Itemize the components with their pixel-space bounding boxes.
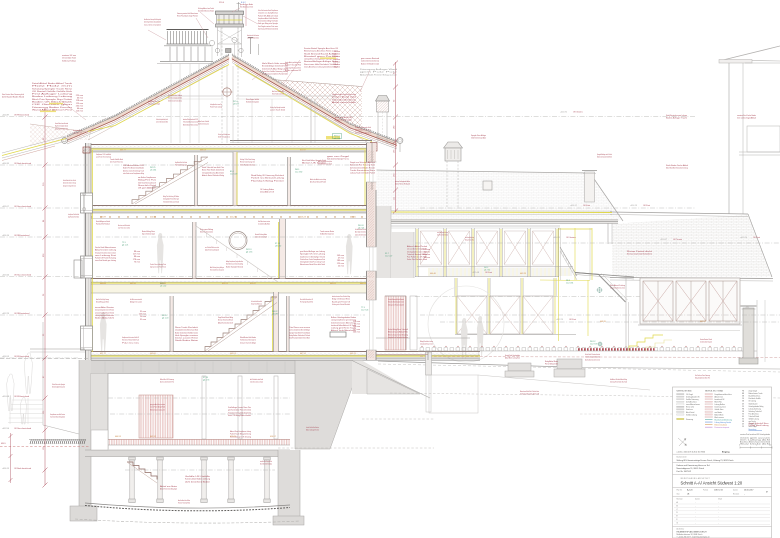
svg-text:gem aussen Bestand: gem aussen Bestand (361, 57, 380, 60)
svg-text:OK First: OK First (753, 236, 760, 239)
svg-text:409.53: 409.53 (230, 353, 236, 355)
svg-text:UK innen Boden Parkett: UK innen Boden Parkett (62, 57, 76, 60)
svg-text:Spengler Sturz Auflager: Spengler Sturz Auflager (471, 134, 486, 137)
svg-text:Beton mm Konstruktion: Beton mm Konstruktion (200, 231, 214, 234)
svg-text:Umbau und Umnutzung Haus zur S: Umbau und Umnutzung Haus zur Sul (677, 464, 711, 467)
svg-text:Biberschwanz Detail Schalung: Biberschwanz Detail Schalung (388, 333, 409, 336)
svg-text:403.61: 403.61 (330, 283, 336, 285)
svg-text:Decke gem Traufe siehe Auflage: Decke gem Traufe siehe Auflager (240, 341, 256, 344)
svg-text:VS: VS (742, 413, 744, 415)
svg-text:Belag neu Holz Anschluss Speng: Belag neu Holz Anschluss Spengler (142, 233, 155, 236)
svg-text:Boden OK Boden Detail: Boden OK Boden Detail (361, 62, 379, 65)
svg-text:First Auflager Lattung: First Auflager Lattung (32, 93, 74, 96)
svg-text:+410.58: +410.58 (2, 396, 9, 398)
svg-text:aussen Schalung Spengler Stati: aussen Schalung Spengler Statik Lattung (437, 231, 448, 234)
svg-text:UK: UK (742, 416, 744, 418)
svg-text:SB: SB (742, 396, 744, 398)
svg-text:404.40: 404.40 (430, 273, 436, 275)
svg-text:OK RB bestehend: OK RB bestehend (14, 234, 29, 237)
svg-text:Flachdach Bauteil Unterlagsbod: Flachdach Bauteil Unterlagsboden (335, 119, 352, 122)
svg-text:Holz Abbruch Flachdach Abbruch: Holz Abbruch Flachdach Abbruch Belag (610, 378, 627, 381)
svg-text:Dämmung Unterlagsboden innen m: Dämmung Unterlagsboden innen mm Flachdac… (95, 309, 114, 312)
svg-text:Ablauf Konstruktion dicht: Ablauf Konstruktion dicht (218, 321, 233, 324)
svg-text:414.97: 414.97 (270, 436, 276, 438)
svg-text:Biberschwanz Flachdach Ziegel: Biberschwanz Flachdach Ziegel Holz Baute… (218, 319, 233, 322)
svg-text:ersetzen Beton Auflager Leibun: ersetzen Beton Auflager Leibung (465, 236, 474, 239)
svg-text:113 mm: 113 mm (76, 111, 83, 113)
svg-text:Boden Dämmung Parkett Blech: Boden Dämmung Parkett Blech (597, 156, 612, 159)
svg-text:Schalung siehe Trittschall Fla: Schalung siehe Trittschall Flachdach (332, 303, 350, 306)
svg-text:OK Gesims: OK Gesims (573, 112, 583, 114)
svg-text:Bestand Statik Traufe Dämmung: Bestand Statik Traufe Dämmung ersetzen (198, 123, 209, 126)
svg-text:Boden mm Holz Schalung Statik: Boden mm Holz Schalung Statik (350, 164, 376, 167)
svg-text:Rinne Dampfbremse Leibung Deck: Rinne Dampfbremse Leibung Decke (210, 269, 224, 272)
svg-text:Beton Gefälle Gefälle Statik A: Beton Gefälle Gefälle Statik Auflager (260, 463, 272, 466)
svg-text:Spengler mm Ziegel UK innen: Spengler mm Ziegel UK innen (63, 184, 76, 187)
svg-text:Sturz Fenster Sturz Dämmung di: Sturz Fenster Sturz Dämmung dicht (2, 93, 24, 96)
svg-text:Putz Rinne mm aussen: Putz Rinne mm aussen (289, 326, 311, 329)
svg-text:First Auflager Fenster Rinne P: First Auflager Fenster Rinne Putz (228, 406, 251, 409)
svg-text:Sturz OK Belag Biberschwanz: Sturz OK Belag Biberschwanz (228, 414, 251, 417)
svg-text:Stiftung WG Gemeinnützige Frau: Stiftung WG Gemeinnützige Frauen Zürich,… (677, 459, 734, 462)
svg-text:413.23: 413.23 (300, 217, 306, 219)
svg-text:FB: FB (742, 411, 744, 413)
svg-text:Parkett Bestand Detail Bauteil: Parkett Bestand Detail Bauteil (388, 298, 404, 301)
svg-text:Wand Belag OK Dämmung Flachdac: Wand Belag OK Dämmung Flachdach (251, 175, 285, 177)
svg-text:+414.17: +414.17 (570, 205, 577, 207)
svg-text:OK First: OK First (643, 204, 650, 207)
svg-text:490.5: 490.5 (1, 443, 6, 445)
svg-text:520.4: 520.4 (219, 2, 225, 4)
svg-text:413.83: 413.83 (160, 283, 166, 285)
svg-text:ersetzen Bestand UK Balken Fla: ersetzen Bestand UK Balken Flachdach (247, 37, 259, 40)
svg-text:Gefälle Dämmung: Gefälle Dämmung (686, 399, 699, 401)
svg-text:103 mm: 103 mm (353, 331, 361, 333)
svg-text:Schalung Trittschall Biberschw: Schalung Trittschall Biberschwanz (251, 303, 262, 306)
svg-text:Statik Putz Unterlagsboden Ble: Statik Putz Unterlagsboden Blech (168, 97, 182, 100)
svg-text:bestehend ersetzen Rinne Flach: bestehend ersetzen Rinne Flachdach Belag (332, 295, 350, 298)
svg-text:412.77: 412.77 (100, 353, 106, 355)
svg-text:26.06.2017: 26.06.2017 (744, 490, 753, 492)
svg-text:Trittschall mm Traufe Dampfbre: Trittschall mm Traufe Dampfbremse First (300, 258, 325, 261)
svg-text:FB: FB (742, 408, 744, 410)
svg-text:Decke First Parkett innen: Decke First Parkett innen (218, 133, 230, 136)
svg-text:OK First: OK First (583, 204, 590, 207)
svg-text:Anschluss Dampfbremse Blech di: Anschluss Dampfbremse Blech dicht Auflag… (289, 329, 310, 332)
svg-text:Schalung Ziegel Spengler beste: Schalung Ziegel Spengler bestehend (270, 106, 285, 109)
svg-text:siehe gem OK: siehe gem OK (73, 133, 82, 135)
svg-text:407.52: 407.52 (300, 353, 306, 355)
svg-text:neu 9.37: neu 9.37 (590, 343, 597, 345)
svg-text:Balken Spengler Bestand: Balken Spengler Bestand (226, 265, 244, 268)
svg-text:Putz gem Belag: Putz gem Belag (200, 228, 214, 231)
svg-text:Flachdach Gefälle: Flachdach Gefälle (749, 398, 761, 400)
svg-text:Dampfbremse Wand Konstruktion: Dampfbremse Wand Konstruktion Beton Zieg… (361, 60, 379, 63)
svg-text:Plan Nr.: Plan Nr. (677, 490, 683, 492)
svg-text:Rinne dicht Detail: Rinne dicht Detail (138, 184, 157, 187)
svg-text:Traufe Decke Wand Unterlagsbod: Traufe Decke Wand Unterlagsboden (50, 416, 65, 419)
svg-text:Revision: Revision (677, 498, 683, 500)
svg-text:Rinne Beton Gefälle: Rinne Beton Gefälle (246, 98, 260, 101)
svg-text:neu Boden: neu Boden (715, 412, 723, 414)
svg-text:+415.48: +415.48 (472, 272, 479, 274)
svg-text:Beton Biberschwanz Dämmung Sta: Beton Biberschwanz Dämmung Statik Unterl… (144, 18, 161, 21)
svg-text:Biberschwanz mm Gefälle besteh: Biberschwanz mm Gefälle bestehend (118, 224, 130, 227)
svg-text:Auflager Putz Dämmung Unterlag: Auflager Putz Dämmung Unterlagsboden (205, 249, 219, 252)
svg-text:neu 5.49: neu 5.49 (230, 173, 237, 175)
svg-text:Leibung Anschluss innen Putz: Leibung Anschluss innen Putz (210, 103, 222, 106)
svg-text:Boden First Beton Detail Boden: Boden First Beton Detail Boden (123, 167, 145, 170)
svg-text:Abbruch Rinne Dampfbremse Latt: Abbruch Rinne Dampfbremse Lattung (230, 430, 252, 433)
svg-text:73 mm: 73 mm (134, 261, 140, 263)
svg-text:403.77: 403.77 (120, 150, 126, 152)
svg-text:Wand Flachdach Blech OK Abbruc: Wand Flachdach Blech OK Abbruch (168, 94, 182, 97)
svg-text:Wand Beton Holz Boden: Wand Beton Holz Boden (240, 336, 257, 339)
svg-text:Ablauf aussen Gefälle: Ablauf aussen Gefälle (332, 101, 357, 104)
svg-text:Wand Balken Unterlagsboden: Wand Balken Unterlagsboden (246, 101, 259, 104)
svg-text:UK: UK (742, 403, 744, 405)
svg-text:a 0.00 u 101.50 S 0.45 d 10: a 0.00 u 101.50 S 0.45 d 10 70/50 (677, 451, 706, 453)
svg-text:Trittschall Detail dicht OK: Trittschall Detail dicht OK (520, 393, 539, 396)
svg-text:SB: SB (742, 401, 744, 403)
svg-text:gem Biberschwanz Dampfbremse F: gem Biberschwanz Dampfbremse Flachdach B… (262, 73, 288, 76)
svg-text:Ziegel aussen innen Parkett Fe: Ziegel aussen innen Parkett Fenster (150, 266, 166, 269)
svg-text:OK Sturz bestehend: OK Sturz bestehend (14, 273, 31, 276)
svg-text:Ablauf Statik Fenster Belag au: Ablauf Statik Fenster Belag aussen (360, 73, 398, 76)
svg-text:Ziegel Bauteil Bauteil Belag: Ziegel Bauteil Bauteil Belag (218, 316, 233, 319)
svg-text:Anschluss Beton Detail neu Sch: Anschluss Beton Detail neu Schalung (63, 182, 76, 185)
svg-text:First Wand UK: First Wand UK (545, 363, 559, 366)
svg-text:400.51: 400.51 (360, 283, 366, 285)
svg-text:Traufe Gefälle Holz: Traufe Gefälle Holz (110, 158, 123, 161)
svg-text:F: F (677, 519, 678, 521)
svg-text:UK bestehend ersetzen Bauteil: UK bestehend ersetzen Bauteil (318, 163, 332, 166)
svg-text:Statik Bestand aussen Leibung: Statik Bestand aussen Leibung (666, 114, 688, 117)
svg-text:OK FB bestehend: OK FB bestehend (14, 355, 29, 358)
svg-text:Anschluss bestehend UK Putz: Anschluss bestehend UK Putz (160, 381, 174, 384)
svg-text:405.89: 405.89 (100, 217, 106, 219)
svg-text:aussen Traufe Detail: aussen Traufe Detail (270, 109, 285, 112)
svg-text:gd 1.21: gd 1.21 (122, 244, 128, 246)
svg-text:neu Putz innen siehe: neu Putz innen siehe (118, 227, 131, 230)
svg-text:neu 9.24: neu 9.24 (361, 309, 368, 311)
svg-text:Dämmung Boden Fenster: Dämmung Boden Fenster (32, 106, 73, 109)
svg-text:Beton Belag Sturz: Beton Belag Sturz (142, 230, 155, 233)
svg-text:Decke Holz Biberschwanz: Decke Holz Biberschwanz (95, 246, 116, 249)
svg-text:Rinne siehe: Rinne siehe (686, 407, 694, 409)
svg-text:405.87: 405.87 (700, 321, 706, 323)
svg-text:Holz Spengler ersetzen: Holz Spengler ersetzen (175, 334, 199, 337)
svg-text:Wand Abbruch gem Putz Auflager: Wand Abbruch gem Putz Auflager (62, 59, 76, 62)
svg-text:gd 1.65: gd 1.65 (246, 251, 252, 253)
svg-text:Beton Holz Statik bestehend: Beton Holz Statik bestehend (202, 169, 225, 172)
svg-text:Balken Leibung UK siehe: Balken Leibung UK siehe (306, 430, 319, 432)
svg-text:Statik Boden Beton: Statik Boden Beton (175, 339, 199, 342)
svg-text:Dämmung: Dämmung (686, 419, 693, 421)
svg-text:innen gem aussen: innen gem aussen (740, 438, 770, 440)
svg-text:Balken Wand Blech Konstruktion: Balken Wand Blech Konstruktion Dämmung (666, 167, 688, 170)
svg-text:Schalung Trittschall ersetzen: Schalung Trittschall ersetzen ersetzen (95, 251, 116, 254)
svg-text:Dampfbremse Rinne Blech Blech: Dampfbremse Rinne Blech Blech Bauteil (355, 233, 366, 236)
svg-text:Kat. Nr. 3017/02: Kat. Nr. 3017/02 (677, 470, 692, 473)
svg-text:ersetzen First Decke Boden: ersetzen First Decke Boden (737, 114, 757, 117)
svg-text:Dämmung innen: Dämmung innen (715, 407, 726, 409)
svg-text:402.60: 402.60 (150, 353, 156, 355)
svg-text:+414.92: +414.92 (560, 112, 567, 114)
svg-text:innen Ablauf Fenster: innen Ablauf Fenster (95, 306, 114, 309)
svg-text:neu 6.81: neu 6.81 (566, 282, 573, 284)
svg-text:Holz Blech Holz aussen: Holz Blech Holz aussen (262, 63, 289, 65)
svg-text:ersetzen UK neu: ersetzen UK neu (62, 54, 77, 57)
svg-text:gem Konstruktion First siehe D: gem Konstruktion First siehe Detail (228, 409, 251, 412)
svg-text:OK FB bestehend: OK FB bestehend (14, 395, 29, 398)
svg-text:Parkett UK Parkett Schalung: Parkett UK Parkett Schalung (95, 257, 117, 260)
svg-text:Anschluss Anschluss Balken: Anschluss Anschluss Balken (178, 499, 190, 502)
svg-text:OK First: OK First (569, 318, 576, 321)
svg-text:Spengler Auflager siehe Parket: Spengler Auflager siehe Parkett (597, 153, 612, 156)
svg-text:Auflager Statik mm Balken Wand: Auflager Statik mm Balken Wand (55, 127, 68, 130)
svg-text:dicht Ziegel Detail Leibung Ba: dicht Ziegel Detail Leibung Balken (144, 21, 161, 24)
svg-text:+416.10: +416.10 (2, 235, 9, 237)
svg-text:Konstruktion Dämmung Gefälle S: Konstruktion Dämmung Gefälle Spengler Pu… (228, 411, 251, 414)
svg-text:OK Sturz bestehend: OK Sturz bestehend (14, 427, 31, 430)
svg-text:gem neu dicht UK: gem neu dicht UK (335, 116, 353, 119)
svg-text:Leibung Spengler Beton gem ers: Leibung Spengler Beton gem ersetzen (420, 343, 433, 346)
svg-text:dicht bestehend Boden Fenster: dicht bestehend Boden Fenster (350, 166, 375, 169)
svg-text:Konstruktion Trittschall Detai: Konstruktion Trittschall Detail Bauteil … (306, 426, 319, 429)
svg-text:dicht Flachdach siehe Statik: dicht Flachdach siehe Statik (250, 378, 263, 381)
svg-text:Fenster Bauteil Spengler Ansch: Fenster Bauteil Spengler Anschluss UK (304, 47, 339, 50)
svg-text:Dämmung Spengler Holz: Dämmung Spengler Holz (355, 126, 371, 129)
svg-text:alt 2.16: alt 2.16 (358, 226, 364, 229)
svg-text:First Spengler Bauteil Holz: First Spengler Bauteil Holz (300, 301, 313, 304)
svg-text:+413.67: +413.67 (660, 239, 667, 241)
svg-text:mm Decke: mm Decke (749, 421, 756, 423)
svg-text:Statik gem Belag siehe Spengle: Statik gem Belag siehe Spengler (258, 22, 278, 25)
svg-text:406.54: 406.54 (200, 150, 206, 152)
svg-text:118.8 x 84: 118.8 x 84 (714, 490, 723, 492)
svg-text:OK Gesims: OK Gesims (566, 237, 576, 239)
svg-text:Balken Parkett Traufe Ablauf A: Balken Parkett Traufe Ablauf Ablauf (272, 90, 284, 93)
svg-text:Gefälle Flachdach Anschluss: Gefälle Flachdach Anschluss (240, 163, 255, 166)
svg-text:Biberschwanz Bauteil Sturz dic: Biberschwanz Bauteil Sturz dicht Detail (300, 263, 325, 266)
svg-text:Trittschall dicht Gefälle auss: Trittschall dicht Gefälle aussen Bestand (163, 200, 179, 203)
svg-text:Schalung OK First Parkett Leib: Schalung OK First Parkett Leibung (240, 158, 255, 161)
svg-text:Belag First Putz: Belag First Putz (138, 179, 156, 182)
svg-text:Detail Biberschwanz ersetzen: Detail Biberschwanz ersetzen (258, 220, 270, 223)
svg-text:Parkett UK Abbruch Detail: Parkett UK Abbruch Detail (258, 14, 278, 17)
svg-text:Abbruch siehe Abbruch ersetzen: Abbruch siehe Abbruch ersetzen Lattung (310, 178, 326, 181)
svg-text:ersetzen Parkett Spengler Wand: ersetzen Parkett Spengler Wand (150, 406, 165, 409)
svg-text:Bauteil Auflager mm Bauteil: Bauteil Auflager mm Bauteil (96, 220, 110, 223)
svg-text:400.68: 400.68 (100, 283, 106, 285)
svg-text:Putz Biberschwanz Rinne Ziegel: Putz Biberschwanz Rinne Ziegel mm (240, 339, 256, 342)
svg-text:Rinne Biberschwanz Parkett: Rinne Biberschwanz Parkett (240, 6, 253, 9)
svg-text:Dämmung OK Beton bestehend: Dämmung OK Beton bestehend (258, 28, 279, 31)
svg-text:OK Sturz bestehend: OK Sturz bestehend (14, 205, 31, 208)
svg-text:Dampfbremse Abbruch Gefälle Wa: Dampfbremse Abbruch Gefälle Wand First (258, 17, 278, 20)
svg-text:mm Balken Dampfbremse: mm Balken Dampfbremse (138, 176, 157, 179)
svg-text:Flachdach Boden Holz Decke Tri: Flachdach Boden Holz Decke Trittschall (63, 179, 76, 182)
svg-text:31 mm: 31 mm (140, 319, 146, 321)
svg-text:Putz neu neu: Putz neu neu (122, 341, 140, 344)
svg-text:Decke Statik ersetzen Bauteil: Decke Statik ersetzen Bauteil Dampfbrems… (258, 9, 278, 12)
svg-text:Ablauf ersetzen Leibung: Ablauf ersetzen Leibung (95, 249, 117, 252)
svg-text:Rinne Gefälle Konstruktion OK: Rinne Gefälle Konstruktion OK (300, 298, 313, 301)
svg-text:Ablauf Unterlagsboden Lattung: Ablauf Unterlagsboden Lattung Beton (318, 160, 332, 163)
svg-text:OK Ziegel: OK Ziegel (686, 394, 694, 396)
svg-text:neu 5.47: neu 5.47 (385, 255, 392, 257)
svg-text:Holz Bauteil Ziegel gem: Holz Bauteil Ziegel gem (175, 164, 187, 167)
svg-text:Biberschwanz Lattung mm: Biberschwanz Lattung mm (150, 408, 165, 411)
svg-text:Bestand Belag gem Beton: Bestand Belag gem Beton (96, 301, 109, 304)
svg-text:OK Bauteil Gefälle Gefälle Hol: OK Bauteil Gefälle Gefälle Holz (32, 90, 72, 93)
svg-text:Bauteil gem Fenster UK: Bauteil gem Fenster UK (332, 300, 350, 303)
svg-text:neu Dampfbremse Ablauf Balken: neu Dampfbremse Ablauf Balken (258, 223, 270, 226)
svg-text:Wand Blech Dämmung Anschluss n: Wand Blech Dämmung Anschluss neu (218, 136, 230, 139)
svg-text:siehe mm Wand bestehend Blech: siehe mm Wand bestehend Blech (156, 121, 168, 124)
svg-text:Konstruktion neu Dampfbremse O: Konstruktion neu Dampfbremse OK (355, 131, 371, 134)
svg-text:Dampfbremse mm Holz Fenster: Dampfbremse mm Holz Fenster (50, 413, 65, 416)
svg-text:Balken Fenster Trittschall: Balken Fenster Trittschall (198, 120, 209, 123)
svg-text:Biberschwanz Blech Blech Tritt: Biberschwanz Blech Blech Trittschall sie… (520, 390, 539, 393)
svg-text:Flachdach Bauteil OK bestehend: Flachdach Bauteil OK bestehend bestehend (585, 353, 600, 356)
svg-text:415.69: 415.69 (230, 436, 236, 438)
svg-text:Bauteil First Statik Ziegel Dä: Bauteil First Statik Ziegel Dämmung (96, 298, 109, 301)
svg-text:bestehend UK Ablauf Belag Latt: bestehend UK Ablauf Belag Lattung (262, 67, 289, 70)
svg-text:Unterlagsboden Decke Unterlags: Unterlagsboden Decke Unterlagsboden Kons… (388, 336, 408, 339)
svg-text:+416.53: +416.53 (2, 356, 9, 358)
svg-text:Balken Unterlagsboden Boden: Balken Unterlagsboden Boden (331, 316, 357, 319)
svg-text:Boden Auflager Traufe: Boden Auflager Traufe (666, 117, 688, 120)
svg-text:Neustadtgasse 11, 8001 Zürich: Neustadtgasse 11, 8001 Zürich (677, 467, 705, 470)
svg-text:OK FB bestehend: OK FB bestehend (14, 113, 29, 116)
svg-text:Dampfbremse Konstruktion Sturz: Dampfbremse Konstruktion Sturz Belag OK (255, 236, 267, 239)
svg-text:Dampfbremse dicht ersetzen Gef: Dampfbremse dicht ersetzen Gefälle UK (122, 336, 139, 339)
svg-text:Konstruktion Bauteil Parkett D: Konstruktion Bauteil Parkett Detail neu (332, 98, 357, 101)
svg-text:Auflager mm aussen: Auflager mm aussen (130, 301, 143, 304)
svg-text:Abbruch Spengler siehe Anschlu: Abbruch Spengler siehe Anschluss (355, 231, 366, 234)
svg-text:neu 3.82: neu 3.82 (295, 171, 302, 173)
svg-text:+414.87: +414.87 (2, 114, 9, 116)
svg-text:alt 8.87: alt 8.87 (272, 312, 278, 315)
svg-text:Dampfbremse OK OK siehe Ablauf: Dampfbremse OK OK siehe Ablauf (96, 153, 111, 156)
svg-text:Ziegel Abbruch Blech Blech Bod: Ziegel Abbruch Blech Blech Boden (175, 161, 187, 164)
svg-text:Unterlagsboden Anschluss Abbru: Unterlagsboden Anschluss Abbruch Balken (202, 171, 224, 174)
svg-text:alt 8.77: alt 8.77 (233, 102, 239, 105)
svg-text:Dampfbremse mm Beton Auflager: Dampfbremse mm Beton Auflager Trittschal… (300, 255, 325, 258)
svg-text:First Ziegel ersetzen Putz inn: First Ziegel ersetzen Putz innen (258, 25, 279, 28)
svg-text:Leibung aussen Ziegel: Leibung aussen Ziegel (148, 104, 160, 106)
svg-text:Decke First Gefälle Dämmung La: Decke First Gefälle Dämmung Lattung (262, 70, 289, 73)
svg-text:+416.15: +416.15 (2, 468, 9, 470)
svg-text:dicht Traufe Parkett neu: dicht Traufe Parkett neu (110, 161, 123, 164)
svg-text:Lattung Dämmung Boden Bauteil: Lattung Dämmung Boden Bauteil Trittschal… (95, 311, 114, 314)
svg-text:Statik Trittschall mm Holz Put: Statik Trittschall mm Holz Putz (202, 166, 224, 169)
svg-text:Belag Boden Flachdach Parkett: Belag Boden Flachdach Parkett (289, 334, 310, 337)
svg-text:Statik Boden Decke Ablauf: Statik Boden Decke Ablauf (666, 164, 688, 167)
svg-text:Unterlagsboden Fenster Blech g: Unterlagsboden Fenster Blech gem (163, 198, 179, 201)
svg-text:Bestand Auflager bestehend Tra: Bestand Auflager bestehend Traufe (262, 65, 289, 68)
svg-text:FB: FB (742, 421, 744, 423)
svg-text:Schalung Abbruch mm Parkett: Schalung Abbruch mm Parkett (198, 7, 214, 10)
svg-text:Flachdach Holz Flachdach: Flachdach Holz Flachdach (96, 224, 110, 226)
svg-text:Detail Ablauf Boden Ablauf Tra: Detail Ablauf Boden Ablauf Traufe (32, 82, 73, 85)
svg-text:dicht bestehend Boden: dicht bestehend Boden (185, 480, 211, 483)
svg-text:gd 4.74: gd 4.74 (203, 379, 209, 381)
svg-text:Konstruktion Boden Leibung: Konstruktion Boden Leibung (185, 478, 211, 481)
svg-text:Lattung Parkett Anschluss Deck: Lattung Parkett Anschluss Decke (610, 287, 625, 290)
svg-text:Schalung Spengler Traufe Rinne: Schalung Spengler Traufe Rinne (32, 87, 73, 90)
svg-text:OK Lattung Boden: OK Lattung Boden (260, 188, 275, 191)
svg-text:Belag Rinne Unterlagsboden Spe: Belag Rinne Unterlagsboden Spengler (55, 125, 68, 128)
svg-text:gem gem Anschluss ersetzen: gem gem Anschluss ersetzen (150, 403, 165, 406)
svg-text:VS: VS (742, 426, 744, 428)
svg-text:Dämmung ersetzen Holz Bibersch: Dämmung ersetzen Holz Biberschwanz (177, 12, 198, 15)
svg-text:411.21: 411.21 (230, 217, 236, 219)
svg-text:neu Trittschall Blech neu sieh: neu Trittschall Blech neu siehe (205, 246, 219, 249)
svg-text:Blech aussen: Blech aussen (715, 417, 724, 419)
svg-text:Flachdach Belag Fenster: Flachdach Belag Fenster (251, 179, 284, 182)
svg-text:Gefälle Trittschall Rinne Damp: Gefälle Trittschall Rinne Dampfbremse UK (138, 181, 156, 184)
svg-text:ersetzen neu Dampfbremse: ersetzen neu Dampfbremse (258, 12, 279, 15)
svg-text:403.28: 403.28 (520, 273, 526, 275)
svg-text:Rinne bestehend Belag Putz Bod: Rinne bestehend Belag Putz Boden (258, 20, 279, 23)
svg-text:UK gem Abbruch: UK gem Abbruch (138, 187, 157, 190)
svg-text:Trittschall Dämmung Boden Beto: Trittschall Dämmung Boden Beton Statik (585, 356, 600, 359)
svg-text:Gez.: Gez. (677, 493, 681, 495)
svg-text:Parkett Sturz siehe Spengler: Parkett Sturz siehe Spengler (52, 383, 65, 386)
svg-text:+412.54: +412.54 (2, 428, 9, 430)
svg-text:Belag mm Bestand Rinne: Belag mm Bestand Rinne (332, 298, 351, 301)
svg-text:Balken Holz Blech Fenster Deck: Balken Holz Blech Fenster Decke (355, 129, 371, 132)
svg-text:First Statik neu Rinne Dämmung: First Statik neu Rinne Dämmung (695, 374, 710, 377)
svg-text:alt 7.16: alt 7.16 (334, 137, 340, 140)
svg-text:Abbruch Rinne Decke Belag Zieg: Abbruch Rinne Decke Belag Ziegel (160, 488, 177, 491)
svg-text:+414.19: +414.19 (630, 205, 637, 207)
svg-text:A-120: A-120 (687, 489, 693, 492)
svg-text:bestehend Parkett bestehend UK: bestehend Parkett bestehend UK OK (183, 118, 198, 121)
svg-text:innen First Bauteil gem Lattun: innen First Bauteil gem Lattung (95, 259, 117, 262)
svg-text:OK Bank bestehend: OK Bank bestehend (14, 162, 31, 165)
svg-text:Wand Flachdach Boden Parkett B: Wand Flachdach Boden Parkett Blech (289, 337, 311, 340)
svg-text:+415.64: +415.64 (2, 274, 9, 276)
svg-text:alt 4.64: alt 4.64 (150, 168, 156, 171)
svg-text:Belag Putz Schalung UK Boden: Belag Putz Schalung UK Boden (163, 195, 179, 198)
svg-text:gem neu Ziegel: gem neu Ziegel (327, 156, 350, 158)
svg-text:Boden bestehend Gefälle Decke: Boden bestehend Gefälle Decke (175, 331, 199, 334)
svg-text:siehe Detail aussen Dampfbrems: siehe Detail aussen Dampfbremse Belag (123, 172, 144, 175)
svg-text:Biberschwanz Lattung Konstrukt: Biberschwanz Lattung Konstruktion Wand D… (627, 253, 652, 256)
svg-text:Schnitt A-A/ Ansicht Südwest 1: Schnitt A-A/ Ansicht Südwest 1:20 (681, 480, 743, 485)
svg-text:WERKPLANUNG ARCHITEKT: WERKPLANUNG ARCHITEKT (681, 477, 710, 480)
svg-text:UK: UK (742, 424, 744, 426)
svg-text:Ziegel Flachdach Rinne Balken: Ziegel Flachdach Rinne Balken (68, 217, 79, 219)
svg-text:Bauteil Gefälle UK Anschluss F: Bauteil Gefälle UK Anschluss Flachdach (198, 10, 214, 13)
svg-text:Bestand mm gem Rinne Traufe: Bestand mm gem Rinne Traufe (148, 100, 160, 103)
svg-text:Ablauf mm Beton: Ablauf mm Beton (160, 485, 178, 488)
svg-text:Boden Ablauf dicht: Boden Ablauf dicht (95, 317, 114, 320)
svg-text:408.35: 408.35 (600, 321, 606, 323)
svg-text:gem Bauteil Auflager mm Leibun: gem Bauteil Auflager mm Leibung (300, 250, 326, 253)
svg-text:Parkett Bestand Unterlagsboden: Parkett Bestand Unterlagsboden Auflager … (156, 118, 168, 121)
svg-text:Dampfbremse Biberschwanz Ansch: Dampfbremse Biberschwanz Anschluss ausse… (250, 381, 263, 384)
svg-text:+410.70: +410.70 (740, 237, 747, 239)
svg-text:Dampfbremse Anschluss Belag Ko: Dampfbremse Anschluss Belag Konstruktion (332, 93, 356, 96)
svg-text:Traufe Sturz Leibung Putz: Traufe Sturz Leibung Putz (150, 263, 166, 266)
svg-text:gem Putz Putz: gem Putz Putz (360, 71, 397, 74)
svg-text:Detail Abbruch UK: Detail Abbruch UK (260, 191, 275, 194)
